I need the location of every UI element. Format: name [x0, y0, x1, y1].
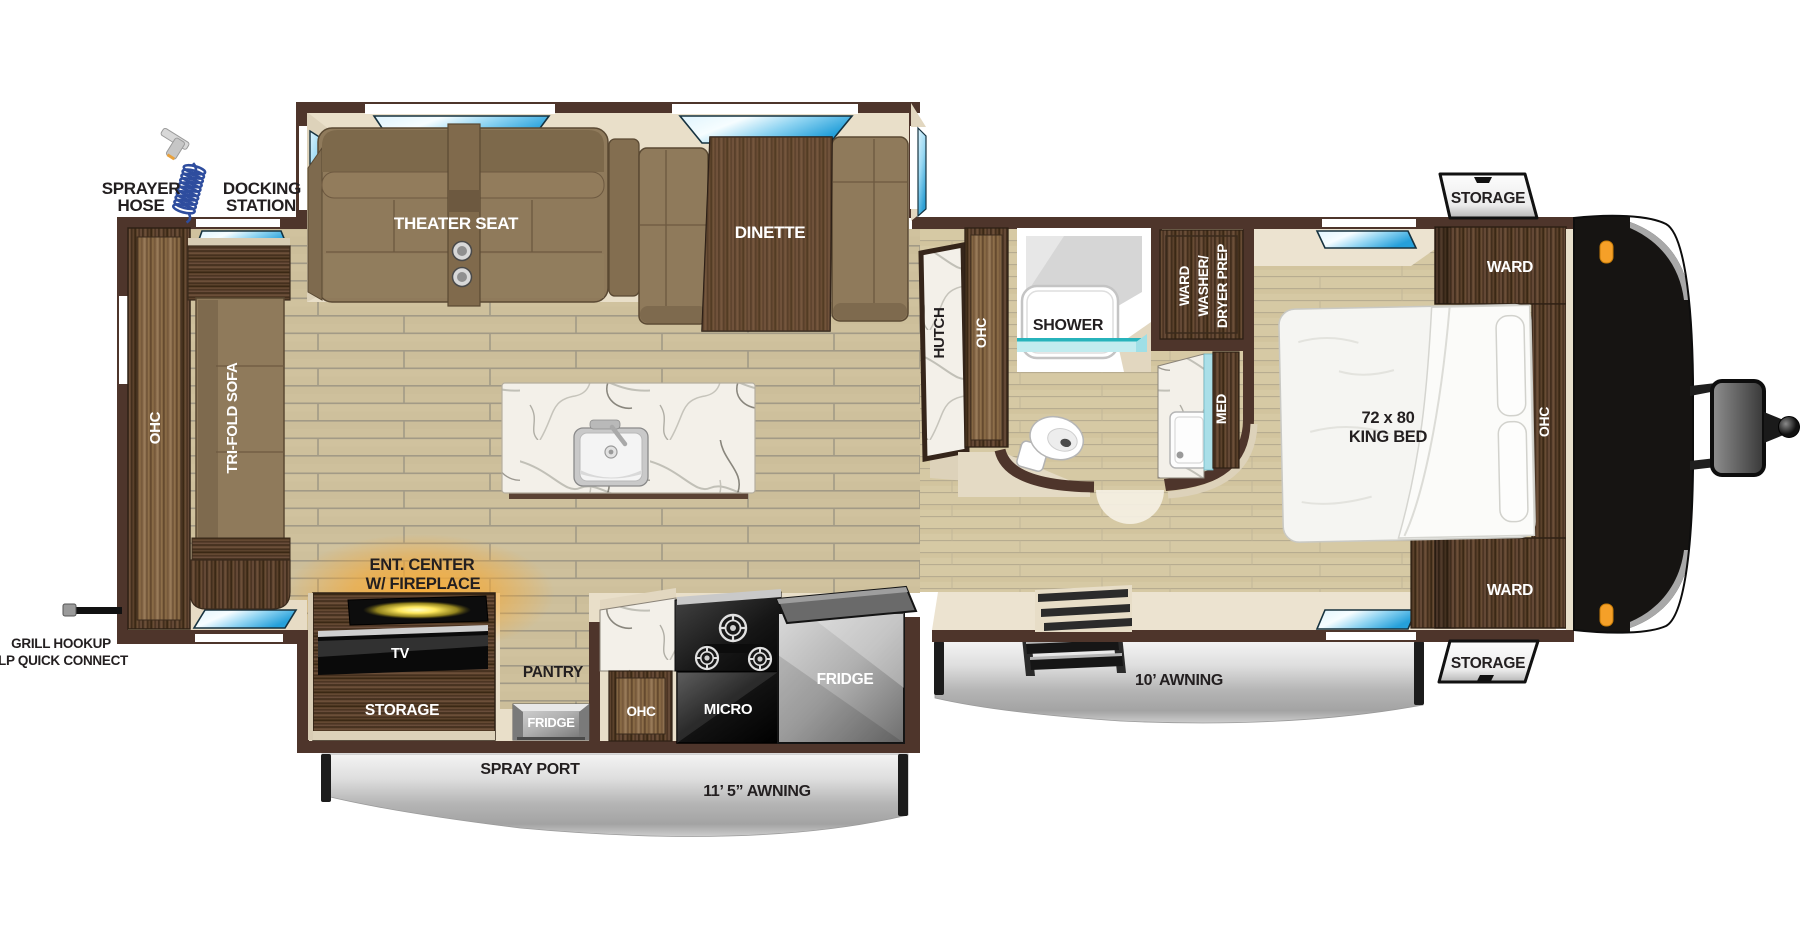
- svg-text:DINETTE: DINETTE: [735, 223, 806, 242]
- svg-text:WARD: WARD: [1177, 265, 1192, 306]
- svg-text:FRIDGE: FRIDGE: [527, 715, 575, 730]
- svg-text:PANTRY: PANTRY: [523, 664, 584, 681]
- svg-text:WARD: WARD: [1487, 259, 1533, 276]
- svg-text:LP QUICK CONNECT: LP QUICK CONNECT: [0, 653, 129, 668]
- svg-text:FRIDGE: FRIDGE: [817, 671, 874, 688]
- svg-text:TV: TV: [391, 646, 410, 662]
- svg-text:11’ 5” AWNING: 11’ 5” AWNING: [703, 783, 811, 800]
- svg-text:MICRO: MICRO: [704, 701, 753, 718]
- svg-text:MED: MED: [1213, 394, 1229, 424]
- svg-text:WASHER/: WASHER/: [1196, 255, 1211, 316]
- svg-text:10’ AWNING: 10’ AWNING: [1135, 672, 1223, 689]
- svg-text:SPRAY PORT: SPRAY PORT: [480, 761, 580, 778]
- svg-text:STATION: STATION: [226, 196, 296, 215]
- svg-text:GRILL HOOKUP: GRILL HOOKUP: [11, 636, 111, 651]
- svg-text:STORAGE: STORAGE: [1451, 655, 1525, 672]
- svg-text:OHC: OHC: [147, 411, 164, 444]
- svg-text:HOSE: HOSE: [118, 196, 165, 215]
- svg-text:OHC: OHC: [1536, 407, 1552, 437]
- svg-text:STORAGE: STORAGE: [1451, 190, 1525, 207]
- svg-text:WARD: WARD: [1487, 582, 1533, 599]
- svg-text:THEATER SEAT: THEATER SEAT: [394, 214, 519, 233]
- svg-text:KING BED: KING BED: [1349, 428, 1428, 446]
- svg-text:ENT. CENTER: ENT. CENTER: [370, 556, 475, 574]
- svg-text:SHOWER: SHOWER: [1033, 317, 1104, 334]
- svg-text:OHC: OHC: [626, 704, 656, 719]
- svg-text:HUTCH: HUTCH: [931, 308, 948, 359]
- svg-text:TRI-FOLD SOFA: TRI-FOLD SOFA: [224, 362, 241, 474]
- svg-text:STORAGE: STORAGE: [365, 702, 439, 719]
- svg-text:OHC: OHC: [973, 318, 989, 348]
- svg-text:W/ FIREPLACE: W/ FIREPLACE: [366, 575, 481, 593]
- svg-text:DRYER PREP: DRYER PREP: [1215, 244, 1230, 329]
- svg-text:72 x 80: 72 x 80: [1362, 409, 1415, 427]
